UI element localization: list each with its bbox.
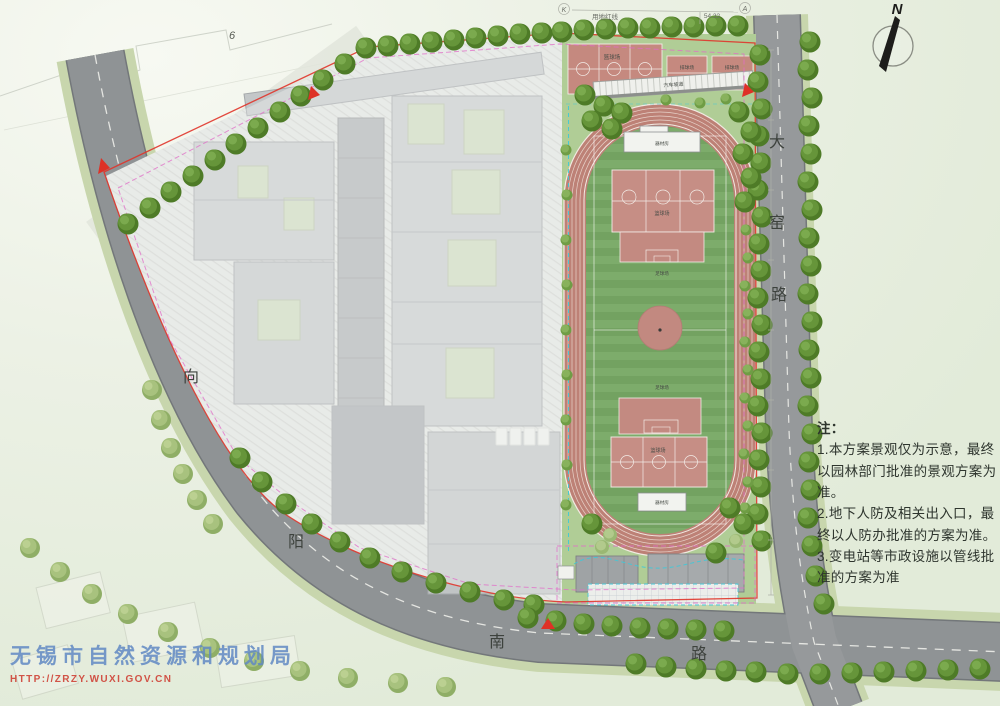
five-a-side-pitch-south xyxy=(619,398,701,434)
north-label: N xyxy=(892,1,904,18)
note-item-3: 3.变电站等市政设施以管线批准的方案为准 xyxy=(817,546,999,589)
redline-label: 用地红线 xyxy=(592,12,619,21)
five-a-side-pitch-north xyxy=(620,232,704,262)
notes-panel: 注： 1.本方案景观仅为示意，最终以园林部门批准的景观方案为准。 2.地下人防及… xyxy=(817,418,999,589)
site-plan-page: 6 xyxy=(0,0,1000,706)
football-label-south: 足球场 xyxy=(655,384,669,391)
football-label-north: 足球场 xyxy=(655,270,669,277)
road-label-xiangyang-2: 阳 xyxy=(288,533,304,551)
center-circle xyxy=(638,306,682,350)
svg-text:器材房: 器材房 xyxy=(655,499,669,506)
survey-point-k: K xyxy=(562,7,567,14)
road-label-dayao-3: 路 xyxy=(771,286,787,304)
site-plan-map: 6 xyxy=(0,0,1000,706)
existing-building-floor-label: 6 xyxy=(229,30,236,42)
equipment-room-south: 器材房 xyxy=(638,493,686,511)
road-label-xiangyang-4: 路 xyxy=(691,645,707,663)
svg-text:器材房: 器材房 xyxy=(655,140,669,147)
svg-text:篮球场: 篮球场 xyxy=(654,210,669,217)
svg-text:汽车坡道: 汽车坡道 xyxy=(663,81,683,89)
svg-text:篮球场: 篮球场 xyxy=(650,447,665,454)
basketball-courts-infield-south: 篮球场 xyxy=(611,437,707,487)
survey-point-a: A xyxy=(742,6,748,13)
svg-text:篮球场: 篮球场 xyxy=(604,53,621,61)
dimension-value: 54.32 xyxy=(704,13,721,20)
road-label-dayao-2: 窑 xyxy=(769,214,785,232)
note-item-2: 2.地下人防及相关出入口，最终以人防办批准的方案为准。 xyxy=(817,503,999,546)
note-item-1: 1.本方案景观仅为示意，最终以园林部门批准的景观方案为准。 xyxy=(817,439,999,503)
road-label-xiangyang-1: 向 xyxy=(183,368,199,386)
notes-heading: 注： xyxy=(817,418,999,439)
parking-area xyxy=(588,584,738,605)
svg-text:排球场: 排球场 xyxy=(680,64,695,71)
basketball-courts-infield-north: 篮球场 xyxy=(612,170,714,232)
road-label-dayao-1: 大 xyxy=(769,133,785,151)
road-label-xiangyang-3: 南 xyxy=(489,633,505,651)
svg-text:排球场: 排球场 xyxy=(725,64,740,71)
